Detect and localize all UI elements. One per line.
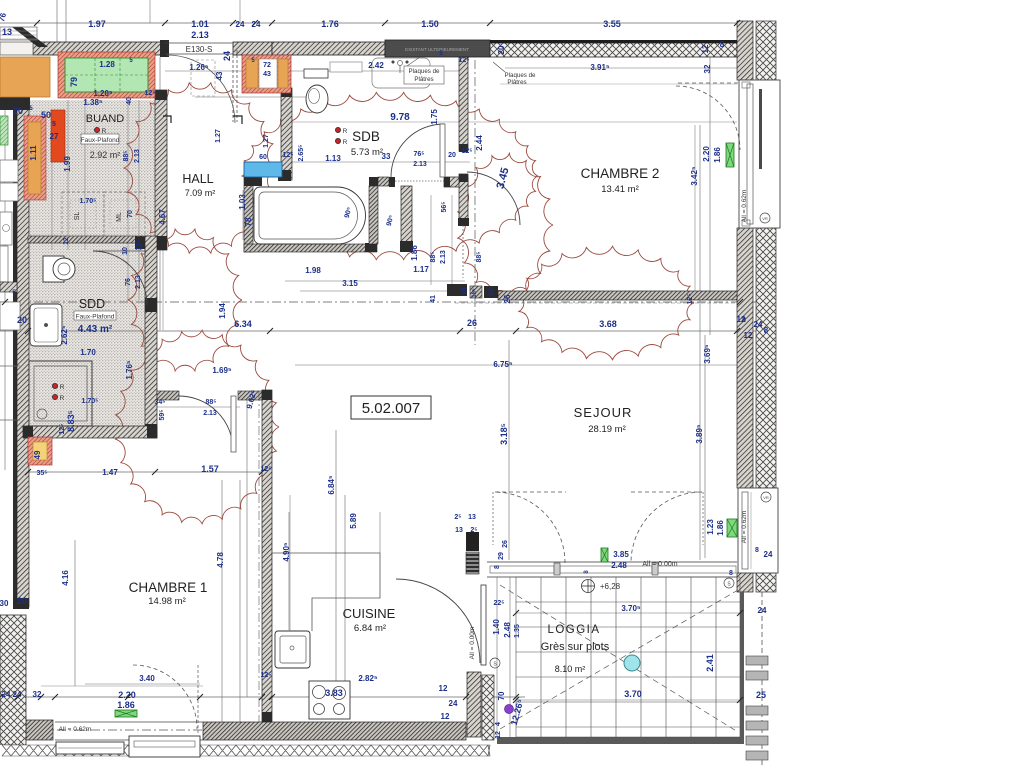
svg-text:20: 20 (17, 315, 27, 325)
svg-text:12⁵: 12⁵ (489, 286, 495, 296)
svg-text:43: 43 (215, 71, 224, 80)
svg-text:1.13: 1.13 (325, 154, 341, 163)
svg-text:13: 13 (455, 527, 463, 534)
svg-text:26: 26 (503, 294, 512, 303)
svg-text:24: 24 (764, 550, 773, 559)
svg-text:27: 27 (50, 132, 59, 141)
svg-text:8: 8 (764, 326, 769, 335)
svg-text:All = 0.00m: All = 0.00m (642, 561, 677, 568)
svg-text:12: 12 (495, 731, 502, 739)
svg-text:1.57: 1.57 (201, 464, 219, 474)
svg-text:12⁵: 12⁵ (136, 239, 143, 250)
svg-text:72: 72 (263, 62, 271, 69)
svg-text:1.03: 1.03 (238, 194, 247, 210)
svg-text:29: 29 (498, 552, 505, 560)
svg-text:1.69⁵: 1.69⁵ (212, 366, 232, 375)
svg-text:4.78: 4.78 (216, 552, 225, 568)
svg-text:R: R (60, 384, 65, 391)
svg-text:3.91⁵: 3.91⁵ (590, 63, 610, 72)
svg-text:SEJOUR: SEJOUR (574, 405, 633, 420)
svg-text:3.68: 3.68 (599, 319, 617, 329)
svg-text:10: 10 (122, 247, 129, 255)
svg-text:1.26⁵: 1.26⁵ (189, 63, 209, 72)
svg-text:13.41 m²: 13.41 m² (601, 184, 639, 195)
svg-text:4.67: 4.67 (158, 209, 167, 225)
svg-text:59⁵: 59⁵ (159, 409, 166, 420)
svg-text:8: 8 (720, 40, 725, 49)
svg-text:8: 8 (729, 570, 733, 577)
svg-text:All = 0.62m: All = 0.62m (59, 726, 92, 733)
svg-text:+6,28: +6,28 (600, 582, 621, 591)
svg-text:1.11: 1.11 (29, 145, 38, 161)
svg-text:12⁵: 12⁵ (282, 152, 293, 159)
svg-text:12⁵: 12⁵ (260, 672, 271, 679)
svg-text:43: 43 (263, 71, 271, 78)
svg-text:12⁵: 12⁵ (458, 57, 469, 64)
svg-text:2.92 m²: 2.92 m² (90, 150, 121, 160)
svg-text:20: 20 (17, 596, 27, 606)
svg-text:EXISTANT ULTERIEUREMENT: EXISTANT ULTERIEUREMENT (405, 47, 469, 52)
svg-text:1.86: 1.86 (713, 147, 722, 163)
svg-text:LOGGIA: LOGGIA (547, 624, 600, 636)
svg-text:2.48: 2.48 (503, 622, 512, 638)
svg-text:Grès sur plots: Grès sur plots (541, 641, 610, 653)
svg-text:88⁵: 88⁵ (205, 399, 216, 406)
svg-text:3.42⁵: 3.42⁵ (690, 166, 699, 186)
svg-text:18⁵: 18⁵ (472, 288, 478, 298)
svg-text:1.47: 1.47 (102, 468, 118, 477)
svg-text:4.16: 4.16 (61, 570, 70, 586)
svg-text:VR: VR (763, 495, 769, 500)
svg-text:All = 0.62m: All = 0.62m (741, 511, 748, 544)
svg-text:2⁵: 2⁵ (470, 527, 477, 534)
svg-text:R: R (60, 395, 65, 402)
svg-text:88⁵: 88⁵ (476, 251, 483, 262)
svg-text:1.75: 1.75 (430, 109, 439, 125)
svg-text:1.50: 1.50 (421, 19, 439, 29)
svg-text:2.13: 2.13 (413, 161, 427, 168)
svg-text:12: 12 (441, 712, 450, 721)
svg-text:12: 12 (744, 331, 753, 340)
svg-text:8.10 m²: 8.10 m² (555, 664, 586, 674)
svg-text:CUISINE: CUISINE (343, 606, 396, 621)
svg-text:76: 76 (125, 278, 132, 286)
svg-text:1.17: 1.17 (413, 265, 429, 274)
svg-text:24: 24 (222, 51, 232, 61)
svg-text:1.20⁵: 1.20⁵ (93, 89, 113, 98)
svg-text:20: 20 (497, 45, 506, 54)
svg-text:Plâtres: Plâtres (507, 79, 526, 86)
svg-text:1.01: 1.01 (191, 19, 209, 29)
svg-text:Faux-Plafond: Faux-Plafond (81, 137, 120, 144)
svg-text:76⁵: 76⁵ (413, 151, 424, 158)
svg-text:78: 78 (244, 217, 253, 226)
svg-text:SL: SL (74, 212, 81, 221)
svg-text:2⁵: 2⁵ (454, 514, 461, 521)
svg-text:7.09 m²: 7.09 m² (185, 188, 216, 198)
svg-text:6.84⁵: 6.84⁵ (327, 475, 336, 495)
svg-text:CHAMBRE 1: CHAMBRE 1 (129, 580, 208, 595)
svg-text:3.69⁵: 3.69⁵ (703, 344, 712, 364)
svg-text:88⁵: 88⁵ (123, 150, 130, 161)
svg-text:1.27: 1.27 (215, 129, 222, 143)
svg-text:12: 12 (439, 684, 448, 693)
svg-text:32: 32 (703, 64, 712, 73)
svg-text:1.76⁵: 1.76⁵ (125, 360, 134, 380)
svg-text:2.13: 2.13 (440, 250, 447, 264)
svg-text:Plâtres: Plâtres (414, 76, 433, 83)
svg-text:33: 33 (382, 152, 391, 161)
svg-text:3.70⁵: 3.70⁵ (621, 604, 641, 613)
svg-text:13: 13 (468, 514, 476, 521)
svg-text:9.78: 9.78 (390, 112, 410, 123)
svg-text:4.90⁵: 4.90⁵ (282, 542, 291, 562)
svg-text:70: 70 (127, 210, 134, 218)
svg-text:20: 20 (448, 152, 456, 159)
svg-text:6.84 m²: 6.84 m² (354, 623, 386, 634)
svg-text:8: 8 (494, 565, 501, 569)
svg-text:2.48: 2.48 (611, 561, 627, 570)
svg-text:CHAMBRE 2: CHAMBRE 2 (581, 166, 660, 181)
svg-text:1.86: 1.86 (410, 245, 419, 261)
svg-text:1.35: 1.35 (514, 624, 521, 638)
svg-text:3.89⁵: 3.89⁵ (695, 424, 704, 444)
svg-text:1.97: 1.97 (88, 19, 106, 29)
svg-text:R: R (343, 139, 348, 146)
svg-text:Plaques de: Plaques de (505, 72, 537, 79)
svg-text:40: 40 (126, 97, 133, 105)
svg-text:3.15: 3.15 (342, 279, 358, 288)
svg-text:79: 79 (69, 77, 79, 87)
svg-text:60: 60 (259, 154, 267, 161)
svg-text:24: 24 (754, 320, 763, 329)
svg-text:24: 24 (449, 699, 458, 708)
svg-text:49: 49 (33, 450, 42, 459)
svg-text:BUAND: BUAND (86, 113, 125, 125)
svg-text:1.76: 1.76 (321, 19, 339, 29)
svg-text:E130-S: E130-S (186, 45, 213, 54)
svg-text:12: 12 (701, 44, 710, 53)
svg-text:4: 4 (495, 722, 502, 726)
svg-text:2.44: 2.44 (475, 135, 484, 151)
svg-text:1.23: 1.23 (706, 519, 715, 535)
svg-text:2.41: 2.41 (705, 654, 715, 672)
svg-text:14.98 m²: 14.98 m² (148, 596, 186, 607)
svg-text:70: 70 (497, 691, 506, 700)
svg-text:1.27: 1.27 (263, 134, 270, 148)
svg-text:2.82⁵: 2.82⁵ (358, 674, 378, 683)
svg-text:3.83: 3.83 (325, 688, 343, 698)
svg-text:12⁵: 12⁵ (59, 423, 66, 434)
svg-text:Faux-Plafond: Faux-Plafond (76, 314, 115, 321)
svg-text:4.43 m²: 4.43 m² (78, 324, 113, 335)
svg-text:28.19 m²: 28.19 m² (588, 424, 626, 435)
svg-text:VR: VR (762, 216, 768, 221)
svg-text:5.73 m²: 5.73 m² (351, 147, 383, 158)
svg-text:1.98: 1.98 (305, 266, 321, 275)
svg-text:2.13: 2.13 (191, 30, 209, 40)
svg-text:2.42: 2.42 (368, 61, 384, 70)
svg-text:10: 10 (462, 287, 468, 294)
svg-text:20: 20 (13, 106, 23, 116)
svg-text:12: 12 (63, 237, 70, 245)
svg-text:8.83⁵: 8.83⁵ (66, 410, 76, 432)
svg-text:SDB: SDB (352, 129, 380, 144)
svg-text:SDD: SDD (79, 297, 105, 311)
svg-text:8: 8 (742, 317, 746, 324)
svg-text:26: 26 (502, 540, 509, 548)
svg-text:88⁵: 88⁵ (430, 251, 437, 262)
svg-text:2.13: 2.13 (135, 275, 142, 289)
svg-text:1.99: 1.99 (63, 156, 72, 172)
svg-text:24: 24 (236, 20, 245, 29)
svg-text:3.18⁵: 3.18⁵ (499, 423, 509, 445)
svg-text:5.02.007: 5.02.007 (362, 400, 420, 417)
svg-text:6.75⁵: 6.75⁵ (493, 360, 513, 369)
svg-text:2.13: 2.13 (203, 410, 217, 417)
svg-text:All = 0.62m: All = 0.62m (741, 190, 748, 223)
svg-text:34⁵: 34⁵ (154, 399, 165, 406)
svg-text:30: 30 (0, 599, 9, 608)
svg-text:HALL: HALL (182, 172, 213, 186)
svg-text:Plaques de: Plaques de (409, 68, 441, 75)
svg-text:5.89: 5.89 (349, 513, 358, 529)
svg-text:24: 24 (758, 606, 767, 615)
svg-text:1.38⁵: 1.38⁵ (83, 98, 103, 107)
svg-text:22⁵: 22⁵ (493, 600, 504, 607)
svg-text:3.40: 3.40 (139, 674, 155, 683)
svg-text:1.86: 1.86 (117, 700, 135, 710)
svg-text:1.40: 1.40 (492, 619, 501, 635)
svg-text:2.20: 2.20 (702, 146, 711, 162)
svg-text:2.62⁵: 2.62⁵ (60, 325, 69, 345)
svg-text:1.28: 1.28 (99, 60, 115, 69)
svg-text:50: 50 (41, 110, 51, 120)
svg-text:1.70⁵: 1.70⁵ (80, 198, 97, 205)
svg-text:ML: ML (116, 212, 123, 222)
svg-text:6.34: 6.34 (234, 319, 252, 329)
svg-text:5: 5 (52, 121, 56, 128)
svg-text:3.85: 3.85 (613, 550, 629, 559)
svg-text:35⁵: 35⁵ (36, 470, 47, 477)
svg-text:12⁵: 12⁵ (687, 293, 694, 304)
svg-text:R: R (102, 128, 107, 135)
svg-text:1.70: 1.70 (80, 348, 96, 357)
svg-text:41: 41 (430, 295, 437, 303)
svg-text:1.94: 1.94 (218, 303, 227, 319)
svg-text:12⁵: 12⁵ (144, 90, 155, 97)
svg-text:1.70⁵: 1.70⁵ (82, 398, 99, 405)
svg-text:8: 8 (755, 547, 759, 554)
svg-text:26: 26 (467, 318, 477, 328)
svg-text:2.13: 2.13 (134, 149, 141, 163)
svg-text:56⁵: 56⁵ (441, 201, 448, 212)
svg-text:3.55: 3.55 (603, 19, 621, 29)
svg-text:3.70: 3.70 (624, 689, 642, 699)
svg-text:1.86: 1.86 (716, 520, 725, 536)
svg-text:13: 13 (2, 27, 12, 37)
svg-text:2.65⁵: 2.65⁵ (298, 145, 305, 162)
svg-text:12⁵: 12⁵ (461, 148, 472, 155)
svg-text:All = 0.00m: All = 0.00m (469, 627, 476, 660)
svg-text:R: R (343, 128, 348, 135)
svg-text:25: 25 (756, 690, 766, 700)
